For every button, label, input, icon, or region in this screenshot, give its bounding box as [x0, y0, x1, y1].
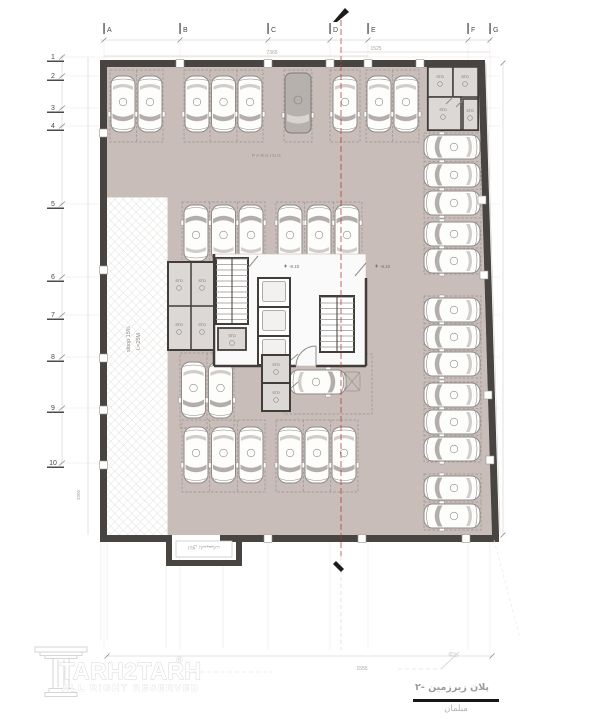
title-underline	[413, 699, 499, 702]
car-icon	[391, 76, 421, 132]
grid-label-5: 5	[51, 201, 55, 208]
ramp: sloop 15% L=25M	[107, 197, 168, 535]
car-icon	[302, 427, 332, 483]
section-arrow-icon	[333, 561, 344, 572]
car-icon	[424, 246, 480, 276]
ramp-slope-label: sloop 15%	[126, 326, 132, 352]
grid-label-8: 8	[51, 354, 55, 361]
car-icon	[329, 427, 359, 483]
level-value: -8.10	[380, 264, 391, 269]
car-icon	[182, 76, 212, 132]
watermark-registered: ®	[176, 655, 183, 665]
car-icon	[135, 76, 165, 132]
grid-label-G: G	[493, 27, 498, 34]
car-icon	[424, 434, 480, 464]
car-icon	[424, 501, 480, 531]
car-icon	[424, 219, 480, 249]
car-icon	[181, 427, 211, 483]
car-icon	[206, 362, 236, 418]
sto-label: STO	[198, 279, 206, 283]
sto-label: STO	[461, 75, 469, 79]
car-icon	[209, 427, 239, 483]
grid-label-3: 3	[51, 105, 55, 112]
van-icon	[282, 73, 314, 133]
grid-label-2: 2	[51, 73, 55, 80]
storage-block-left: STO STO STO STO	[168, 262, 214, 350]
sto-label: STO	[198, 323, 206, 327]
pencil-leader: ✎	[398, 646, 463, 669]
car-icon	[424, 473, 480, 503]
sto-label: STO	[439, 108, 447, 112]
car-icon	[364, 76, 394, 132]
grid-label-4: 4	[51, 123, 55, 130]
stair-left	[216, 258, 248, 324]
grid-label-9: 9	[51, 405, 55, 412]
grid-label-C: C	[271, 27, 276, 34]
car-icon	[275, 205, 305, 261]
sto-label: STO	[272, 363, 280, 367]
car-icon	[236, 205, 266, 261]
car-icon	[424, 349, 480, 379]
stair-right	[320, 296, 354, 352]
utility-room-label: اتاق تاسیسات	[188, 544, 220, 550]
sto-label: STO	[228, 334, 236, 338]
elevator-cab	[263, 282, 286, 302]
grid-label-A: A	[107, 27, 112, 34]
plan-subtitle: مبلمان	[413, 704, 499, 714]
car-icon	[275, 427, 305, 483]
sto-label: STO	[175, 323, 183, 327]
sto-label: STO	[466, 109, 474, 113]
level-value: -8.10	[289, 264, 300, 269]
ramp-length-label: L=25M	[136, 333, 142, 350]
car-icon	[330, 76, 360, 132]
grid-label-B: B	[183, 27, 188, 34]
elevator-bank	[258, 278, 290, 365]
grid-label-10: 10	[49, 460, 57, 467]
car-icon	[304, 205, 334, 261]
construction-lines-bottom	[101, 540, 520, 648]
car-icon	[424, 132, 480, 162]
car-icon	[179, 362, 209, 418]
car-icon	[424, 160, 480, 190]
grid-columns: A B C D E F G	[103, 23, 498, 34]
dim-top-right: 1525	[370, 46, 381, 52]
dim-left-height: 3300	[76, 489, 81, 500]
car-icon	[424, 407, 480, 437]
floorplan-canvas: sloop 15% L=25M	[0, 0, 600, 720]
grid-label-6: 6	[51, 274, 55, 281]
car-icon	[235, 76, 265, 132]
watermark-rights: ALL RIGHT RESERVED	[62, 683, 200, 694]
storage-room-understair: STO	[218, 328, 246, 350]
sto-label: STO	[272, 391, 280, 395]
car-icon	[424, 188, 480, 218]
grid-rows: 1 2 3 4 5 6 7 8 9 10	[47, 54, 64, 468]
grid-label-E: E	[371, 27, 376, 34]
elevator-cab	[263, 311, 286, 331]
car-icon	[424, 295, 480, 325]
car-icon	[209, 76, 239, 132]
car-icon	[209, 205, 239, 261]
car-icon	[290, 367, 346, 397]
car-icon	[236, 427, 266, 483]
sto-label: STO	[175, 279, 183, 283]
plan-title: پلان زیرزمین -۲	[402, 682, 502, 693]
parking-label: PARKING	[252, 153, 282, 159]
sto-label: STO	[436, 75, 444, 79]
car-icon	[424, 322, 480, 352]
car-icon	[332, 205, 362, 261]
grid-label-1: 1	[51, 54, 55, 61]
dim-top-main: 7365	[266, 50, 277, 56]
car-icon	[424, 380, 480, 410]
grid-label-7: 7	[51, 312, 55, 319]
north-arrow-icon	[333, 8, 349, 22]
pencil-icon: ✎	[445, 646, 463, 665]
floorplan-drawing: sloop 15% L=25M	[0, 0, 600, 720]
car-icon	[108, 76, 138, 132]
storage-block-topright: STO STO STO STO	[428, 67, 478, 130]
grid-label-F: F	[471, 27, 475, 34]
grid-label-D: D	[333, 27, 338, 34]
dim-bottom: 1555	[356, 666, 367, 672]
car-icon	[181, 205, 211, 261]
watermark: TARH2TARH ® ALL RIGHT RESERVED	[35, 647, 272, 697]
